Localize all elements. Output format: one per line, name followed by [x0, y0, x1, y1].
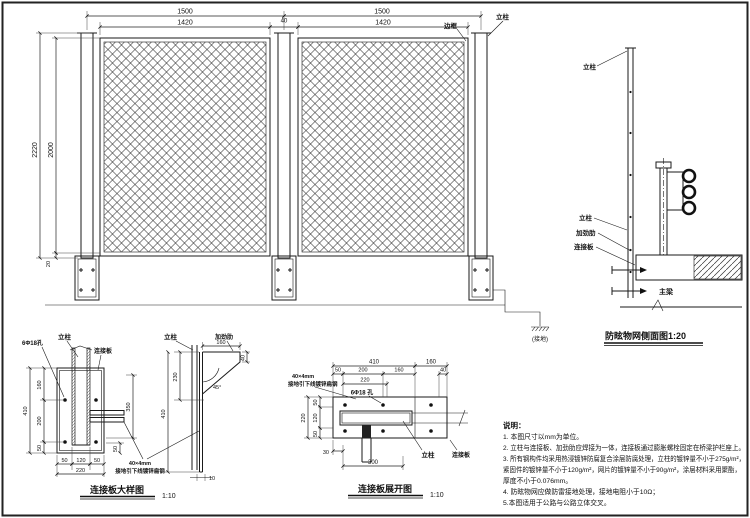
dim-seg2: 200	[37, 416, 43, 425]
side-stiffener-label2: 加劲肋	[214, 333, 233, 341]
detail-plate-caption-text: 连接板大样图	[90, 484, 144, 495]
dev-dim-left1: 50	[313, 399, 319, 405]
note-line: 5.本图适用于公路与公路立体交叉。	[503, 498, 611, 507]
dev-plate-label: 连接板	[452, 451, 471, 459]
dim-bottom2: 120	[76, 458, 85, 464]
dev-dim-top1: 410	[369, 360, 380, 366]
angle-label: 45°	[213, 385, 221, 391]
note-line: 1. 本图尺寸以mm为单位。	[503, 432, 583, 441]
dim-bar: 350	[126, 402, 132, 411]
dim-span-left: 1500	[177, 9, 193, 16]
dim-height-total: 2220	[32, 142, 39, 158]
dim-height-bottom: 20	[46, 261, 52, 267]
dim-side-total: 410	[161, 409, 167, 418]
dev-dim-row3: 160	[394, 368, 403, 374]
dev-dim-left3: 50	[313, 431, 319, 437]
holes-label: 6Φ18孔	[22, 339, 43, 347]
dim-panel-left: 1420	[177, 20, 193, 27]
dev-post-label: 立柱	[422, 450, 436, 459]
note-line: 2. 立柱与连接板、加劲肋应焊接为一体，连接板通过膨胀螺栓固定在桥梁护栏座上。	[503, 443, 745, 452]
detail-dev-scale: 1:10	[430, 492, 444, 499]
dev-dim-bottom1: 30	[323, 450, 329, 456]
dim-span-right: 1500	[374, 9, 390, 16]
notes-heading: 说明：	[503, 420, 526, 430]
beam-label: 主梁	[659, 287, 674, 296]
dim-total-height: 410	[23, 406, 29, 415]
dev-lead-desc-label: 接地引下线镀锌扁钢	[288, 380, 338, 388]
ground-label: (接地)	[532, 335, 548, 343]
detail-plate-scale: 1:10	[162, 493, 176, 500]
side-view-title-text: 防眩物网侧面图1:20	[605, 330, 686, 341]
dev-dim-top2: 160	[426, 360, 437, 366]
mesh-panel-left	[100, 38, 270, 256]
side-post-label2: 立柱	[164, 332, 178, 341]
dim-panel-gap: 40	[281, 19, 288, 25]
drawing-sheet: (接地) 1500 1500 1420 40 1420	[0, 0, 750, 518]
dev-dim-row1: 50	[335, 368, 341, 374]
dim-plate-thickness: 10	[209, 476, 215, 482]
dim-panel-right: 1420	[375, 20, 391, 27]
dev-dim-row4: 40	[440, 368, 446, 374]
dim-corner: 50	[113, 446, 119, 452]
dev-dim-holes-span: 220	[360, 378, 369, 384]
post-label: 立柱	[496, 12, 510, 21]
note-line: 4. 防眩物网应做防雷接地处理，接地电阻小于10Ω；	[503, 487, 659, 496]
lead-size-label: 40×4mm	[129, 461, 151, 467]
plate-plate-label: 连接板	[94, 347, 113, 355]
cad-canvas: (接地) 1500 1500 1420 40 1420	[0, 0, 750, 518]
dim-seg3: 50	[37, 445, 43, 451]
side-stiffener-label: 加劲肋	[575, 228, 596, 237]
side-post-top-label: 立柱	[583, 62, 597, 71]
dev-dim-bottom2: 300	[368, 460, 379, 466]
detail-dev-caption-text: 连接板展开图	[358, 483, 412, 494]
side-post-label: 立柱	[579, 213, 593, 222]
dev-holes-label: 6Φ18 孔	[351, 389, 374, 397]
note-line: 紧固件的镀锌量不小于120g/m²，网片的镀锌量不小于90g/m²，涂层材料采用…	[503, 465, 741, 474]
dev-lead-size-label: 40×4mm	[292, 374, 314, 380]
mesh-panel-right	[298, 38, 468, 256]
dim-seg1: 160	[37, 380, 43, 389]
dim-bottom3: 50	[94, 458, 100, 464]
dev-dim-left2: 120	[313, 413, 319, 422]
frame-label: 边框	[443, 21, 458, 30]
dim-height-mesh: 2000	[48, 142, 55, 158]
dim-side-inner: 230	[173, 372, 179, 381]
dev-dim-left-total: 220	[301, 413, 307, 422]
dim-bottom1: 50	[61, 458, 67, 464]
dev-dim-row2: 200	[358, 368, 367, 374]
plate-post-label: 立柱	[58, 332, 72, 341]
lead-desc-label: 接地引下线镀锌扁钢	[115, 467, 165, 475]
note-line: 3. 所有钢构件均采用热浸镀锌防腐复合涂层防腐处理，立柱的镀锌量不小于275g/…	[503, 454, 745, 463]
dim-side-leg: 40	[241, 355, 247, 361]
side-plate-label: 连接板	[574, 242, 594, 251]
dim-bottom-total: 220	[76, 468, 85, 474]
note-line: 厚度不小于0.076mm。	[503, 476, 572, 485]
